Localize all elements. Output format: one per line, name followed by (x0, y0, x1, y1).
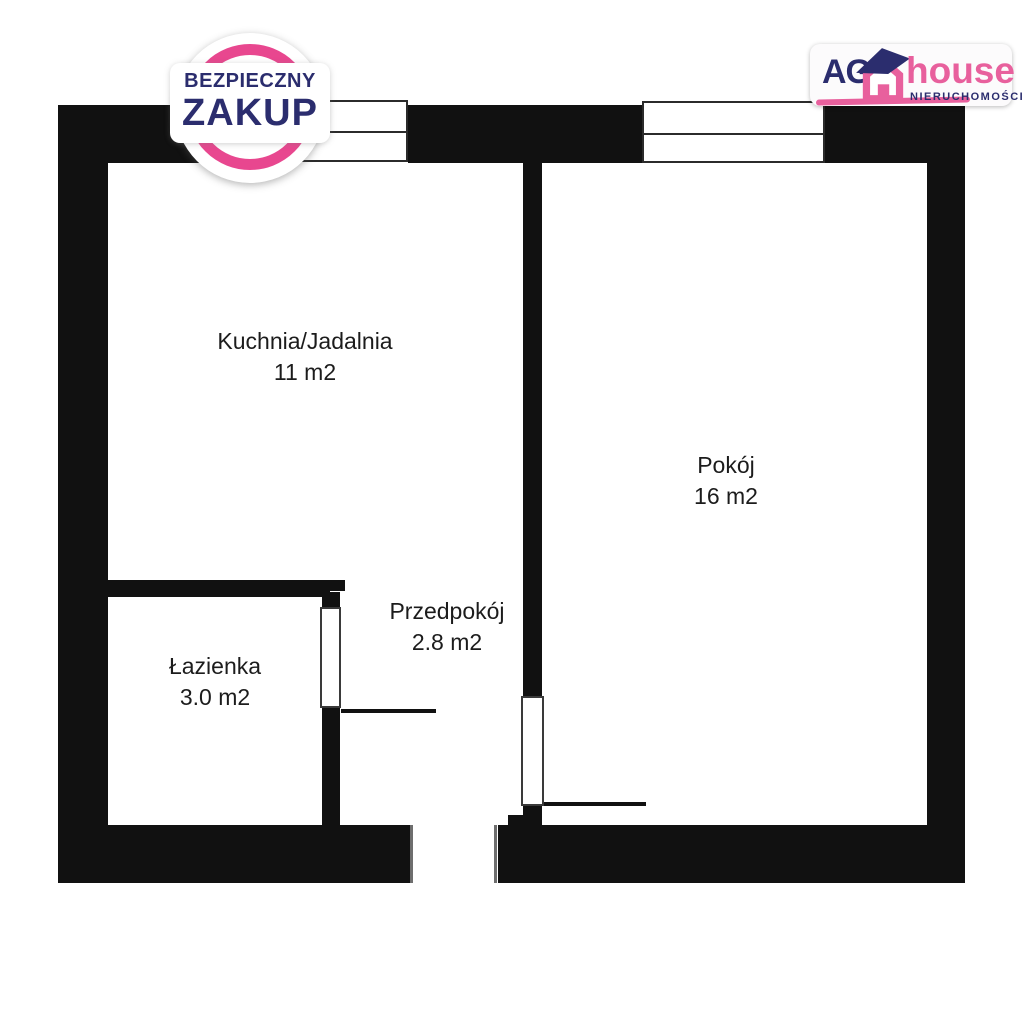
room-area: 11 m2 (217, 357, 392, 388)
logo-subtitle: NIERUCHOMOŚCI (910, 91, 1024, 103)
room-door-leaf (544, 802, 646, 806)
bathroom-door (320, 607, 341, 708)
wall-bathroom-top (108, 580, 330, 597)
entrance-door-frame-left (410, 825, 413, 883)
wall-bottom-right (498, 825, 965, 883)
badge-line2: ZAKUP (168, 92, 332, 135)
room-window (642, 101, 825, 163)
wall-top-middle (408, 105, 642, 163)
wall-right (927, 105, 965, 883)
ag-house-logo: AG house NIERUCHOMOŚCI (810, 44, 1012, 106)
logo-name: house (906, 50, 1015, 92)
room-area: 3.0 m2 (169, 682, 261, 713)
badge-line1: BEZPIECZNY (168, 70, 332, 93)
wall-left (58, 105, 108, 883)
room-door (521, 696, 544, 806)
room-name: Łazienka (169, 651, 261, 682)
room-name: Przedpokój (389, 596, 504, 627)
room-area: 2.8 m2 (389, 627, 504, 658)
wall-bathroom-top-end (330, 580, 345, 591)
wall-door-jamb (508, 815, 523, 827)
room-label: Pokój 16 m2 (694, 450, 758, 512)
kitchen-label: Kuchnia/Jadalnia 11 m2 (217, 326, 392, 388)
room-name: Kuchnia/Jadalnia (217, 326, 392, 357)
wall-bathroom-right-lower (322, 706, 340, 825)
entrance-door-frame-right (494, 825, 497, 883)
wall-bottom-left (58, 825, 410, 883)
house-icon (854, 45, 912, 110)
bathroom-label: Łazienka 3.0 m2 (169, 651, 261, 713)
room-area: 16 m2 (694, 481, 758, 512)
wall-middle-stub (523, 805, 542, 830)
room-name: Pokój (694, 450, 758, 481)
wall-middle-vertical (523, 163, 542, 697)
hallway-label: Przedpokój 2.8 m2 (389, 596, 504, 658)
bathroom-door-leaf (341, 709, 436, 713)
bezpieczny-zakup-badge: BEZPIECZNY ZAKUP (168, 30, 332, 182)
floor-plan-page: Kuchnia/Jadalnia 11 m2 Pokój 16 m2 Przed… (0, 0, 1024, 1024)
window-sill-line (644, 133, 823, 135)
